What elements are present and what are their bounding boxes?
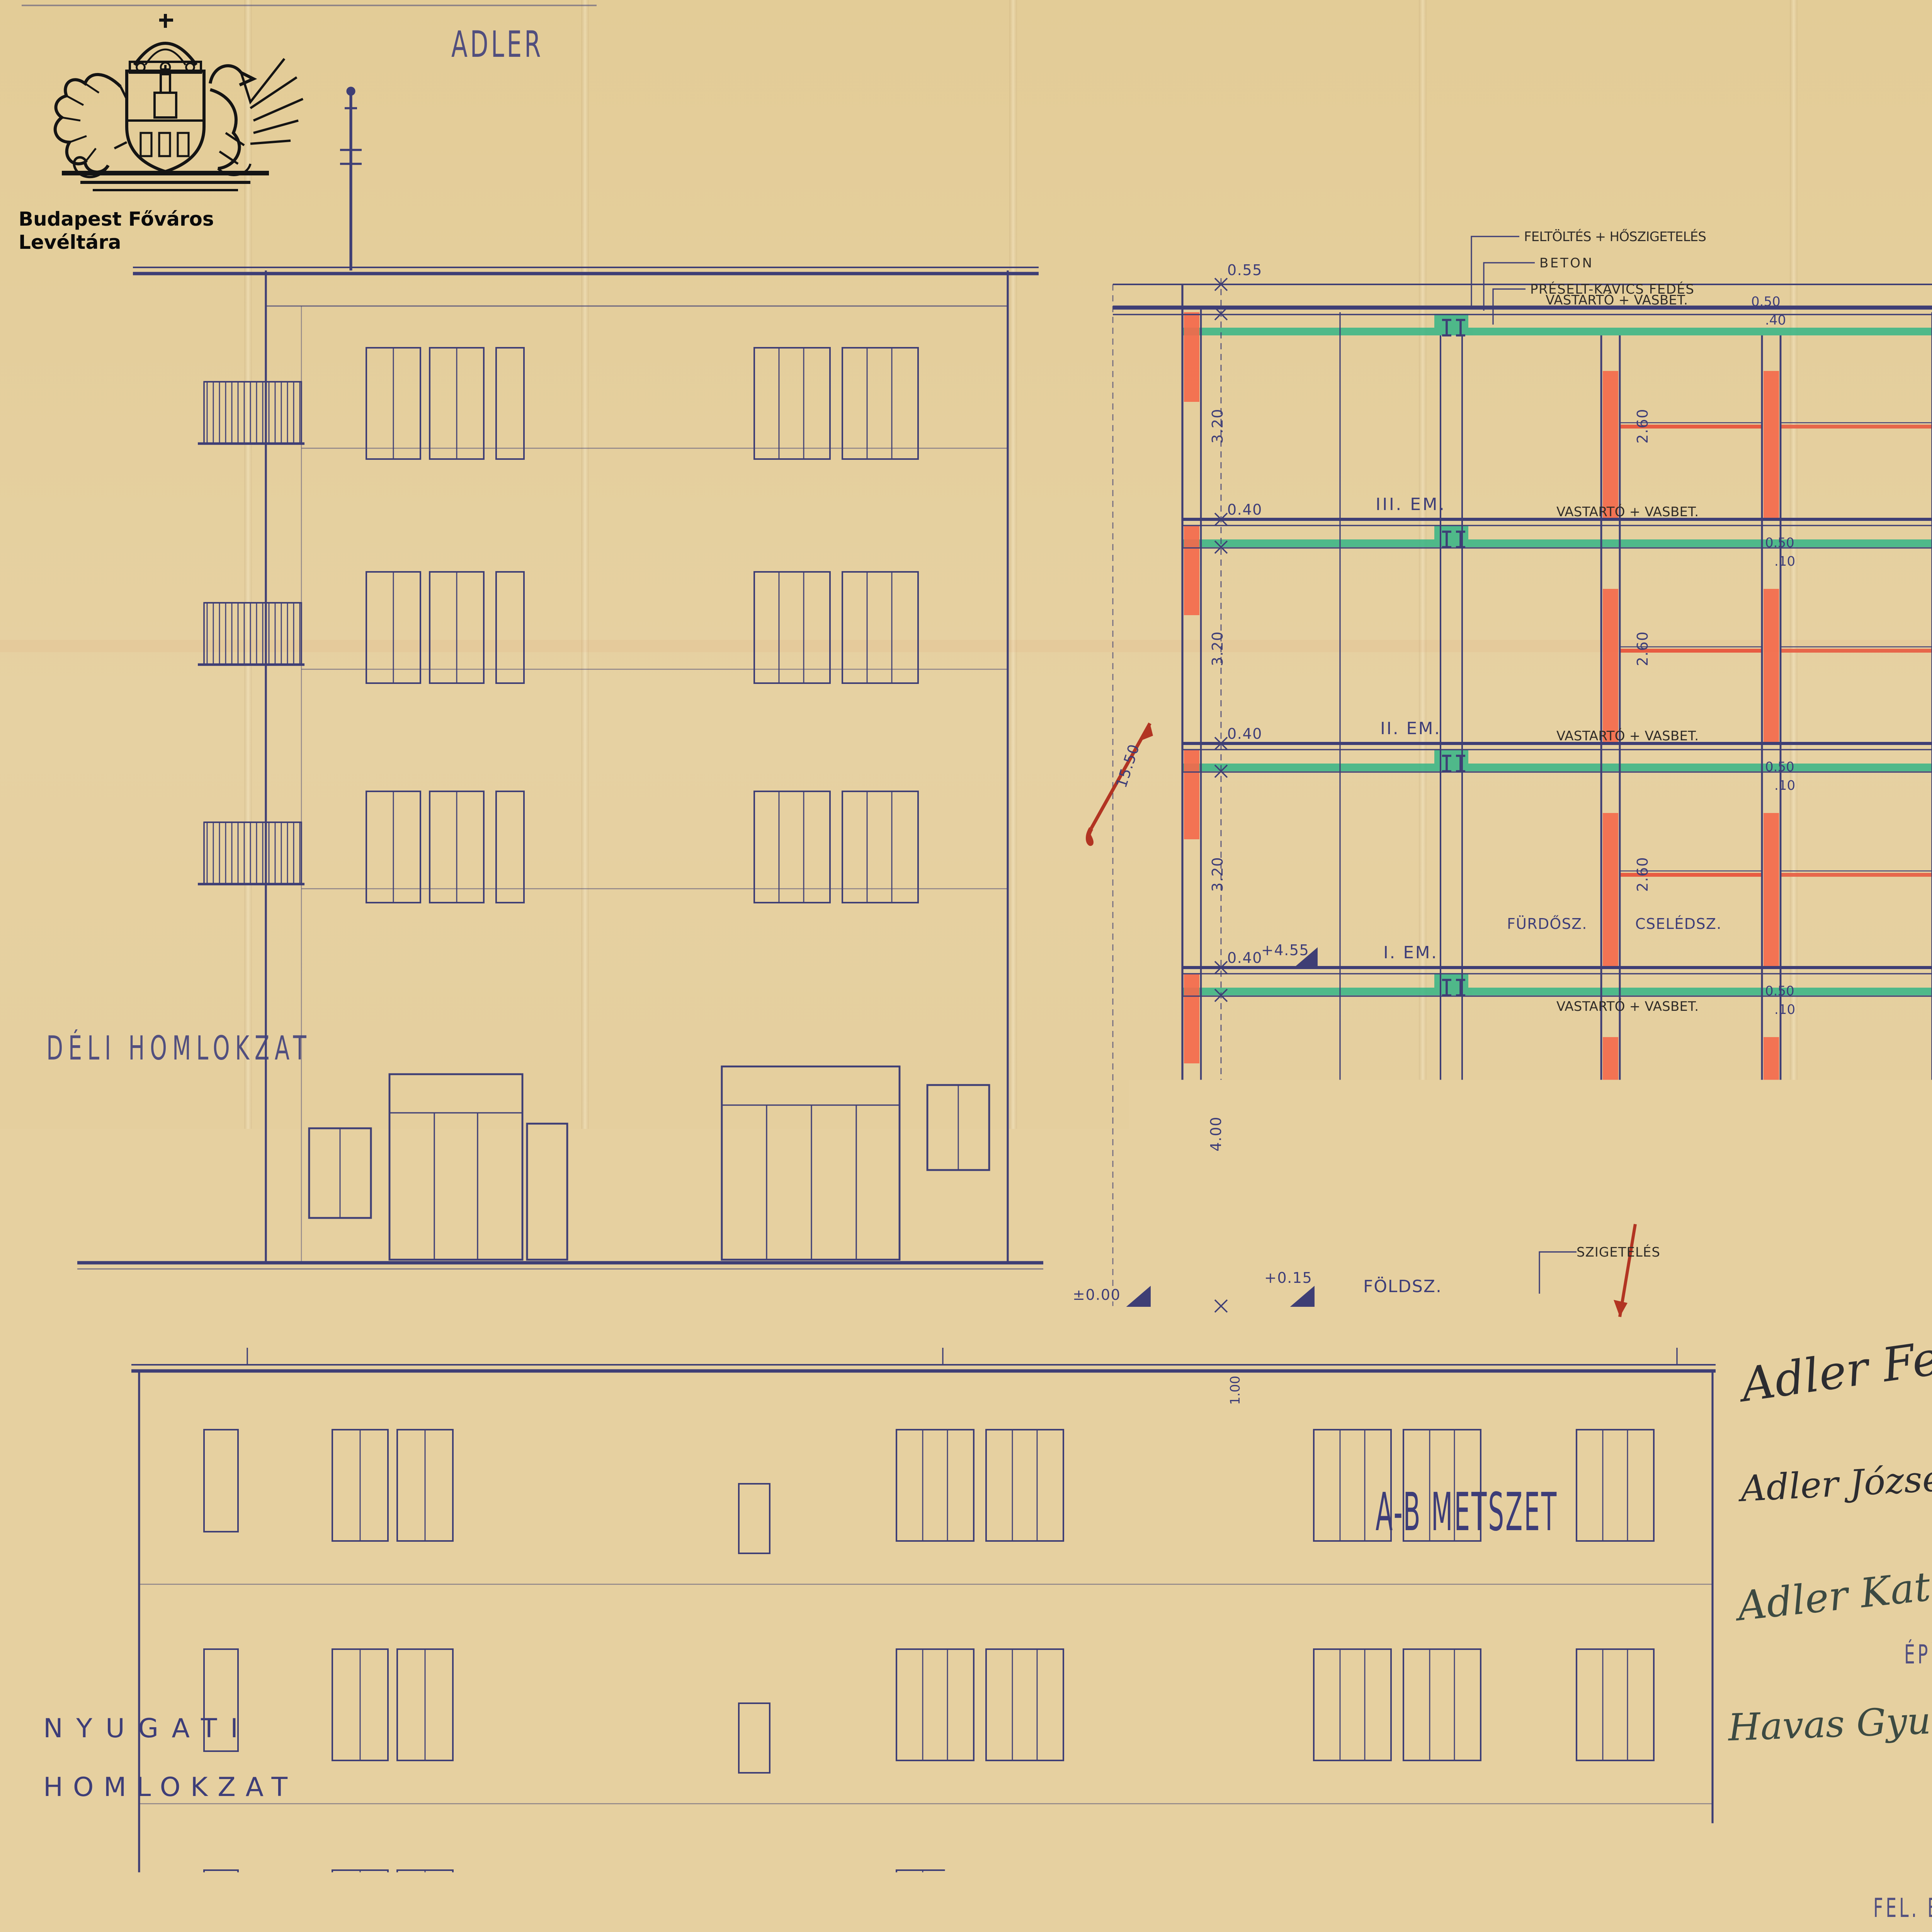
dim-ground-height: 4.00 bbox=[1207, 1116, 1225, 1151]
dim-clear: 2.60 bbox=[1634, 408, 1651, 444]
border-left bbox=[20, 1607, 22, 1932]
dim-roof: 0.55 bbox=[1227, 262, 1262, 279]
level-first: +4.55 bbox=[1261, 942, 1309, 959]
floor-ground: FÖLDSZ. bbox=[1363, 1276, 1444, 1296]
dim-total-height: 15.50 bbox=[1113, 742, 1143, 790]
beam-label-3: VASTARTÓ + VASBET. bbox=[1556, 504, 1699, 520]
room-maid: CSELÉDSZ. bbox=[1635, 915, 1722, 932]
dim-050: 0.50 bbox=[1765, 759, 1794, 775]
west-elevation-lines bbox=[62, 1348, 1716, 1932]
floor-second: II. EM. bbox=[1380, 719, 1442, 738]
beam-label-roof: VASTARTÓ + VASBET. bbox=[1546, 292, 1688, 308]
west-label-2: HOMLOKZAT bbox=[43, 1772, 291, 1803]
piers-red bbox=[1184, 312, 1932, 1376]
section-lines bbox=[1066, 236, 1932, 1456]
drawing-sheet: Budapest Főváros Levéltára ADLER JÓZSEF … bbox=[0, 0, 1932, 1932]
dim-050: 0.50 bbox=[1765, 535, 1794, 551]
windows bbox=[366, 348, 918, 903]
dim-040s: .40 bbox=[1765, 313, 1786, 328]
south-elevation-label: DÉLI HOMLOKZAT bbox=[46, 1029, 311, 1068]
west-windows bbox=[204, 1430, 1654, 1932]
owners-label: ÉPÍTTETŐK: bbox=[1904, 1641, 1932, 1672]
border-top bbox=[22, 5, 597, 6]
dim-story: 3.20 bbox=[1209, 408, 1226, 444]
builder-label: FEL. ÉPÍTŐMESTER: bbox=[1873, 1895, 1932, 1925]
room-bath: FÜRDŐSZ. bbox=[1507, 915, 1587, 932]
dim-story: 3.20 bbox=[1209, 857, 1226, 892]
dim-story: 3.20 bbox=[1209, 631, 1226, 666]
dim-010: .10 bbox=[1774, 778, 1795, 793]
storefronts bbox=[309, 1066, 989, 1260]
west-label-1: NYUGATI bbox=[43, 1713, 241, 1744]
dim-050: 0.50 bbox=[1751, 294, 1781, 310]
level-zero: ±0.00 bbox=[1073, 1286, 1121, 1303]
beam-label-1: VASTARTÓ + VASBET. bbox=[1556, 998, 1699, 1014]
west-elevation-drawing: NYUGATI HOMLOKZAT bbox=[31, 1332, 1762, 1932]
note-fill: FELTÖLTÉS + HŐSZIGETELÉS bbox=[1524, 229, 1706, 245]
west-elevation-labels: NYUGATI HOMLOKZAT bbox=[43, 1713, 291, 1803]
dim-slab: 0.40 bbox=[1227, 725, 1262, 742]
dim-010: .10 bbox=[1774, 554, 1795, 569]
red-ink-marks bbox=[1088, 723, 1635, 1317]
beam-label-2: VASTARTÓ + VASBET. bbox=[1556, 728, 1699, 744]
balconies bbox=[198, 382, 304, 884]
south-elevation-lines bbox=[77, 87, 1043, 1269]
level-ground: +0.15 bbox=[1264, 1269, 1312, 1286]
floor-third: III. EM. bbox=[1376, 495, 1447, 514]
note-concrete: BETON bbox=[1539, 255, 1592, 271]
south-elevation-drawing bbox=[62, 62, 1066, 1298]
sheet-title: ADLER JÓZSEF ÚR ÉS ÉRDEKTÁRSAI BÉRHÁZÉPÍ… bbox=[451, 25, 1932, 67]
dim-slab: 0.40 bbox=[1227, 501, 1262, 518]
dim-slab: 0.40 bbox=[1227, 949, 1262, 966]
dim-clear: 2.60 bbox=[1634, 857, 1651, 892]
floor-first: I. EM. bbox=[1383, 943, 1439, 963]
insulation-label: SZIGETELÉS bbox=[1577, 1244, 1660, 1260]
dim-050: 0.50 bbox=[1765, 983, 1794, 999]
dim-010: .10 bbox=[1774, 1002, 1795, 1017]
dim-clear: 2.60 bbox=[1634, 631, 1651, 666]
